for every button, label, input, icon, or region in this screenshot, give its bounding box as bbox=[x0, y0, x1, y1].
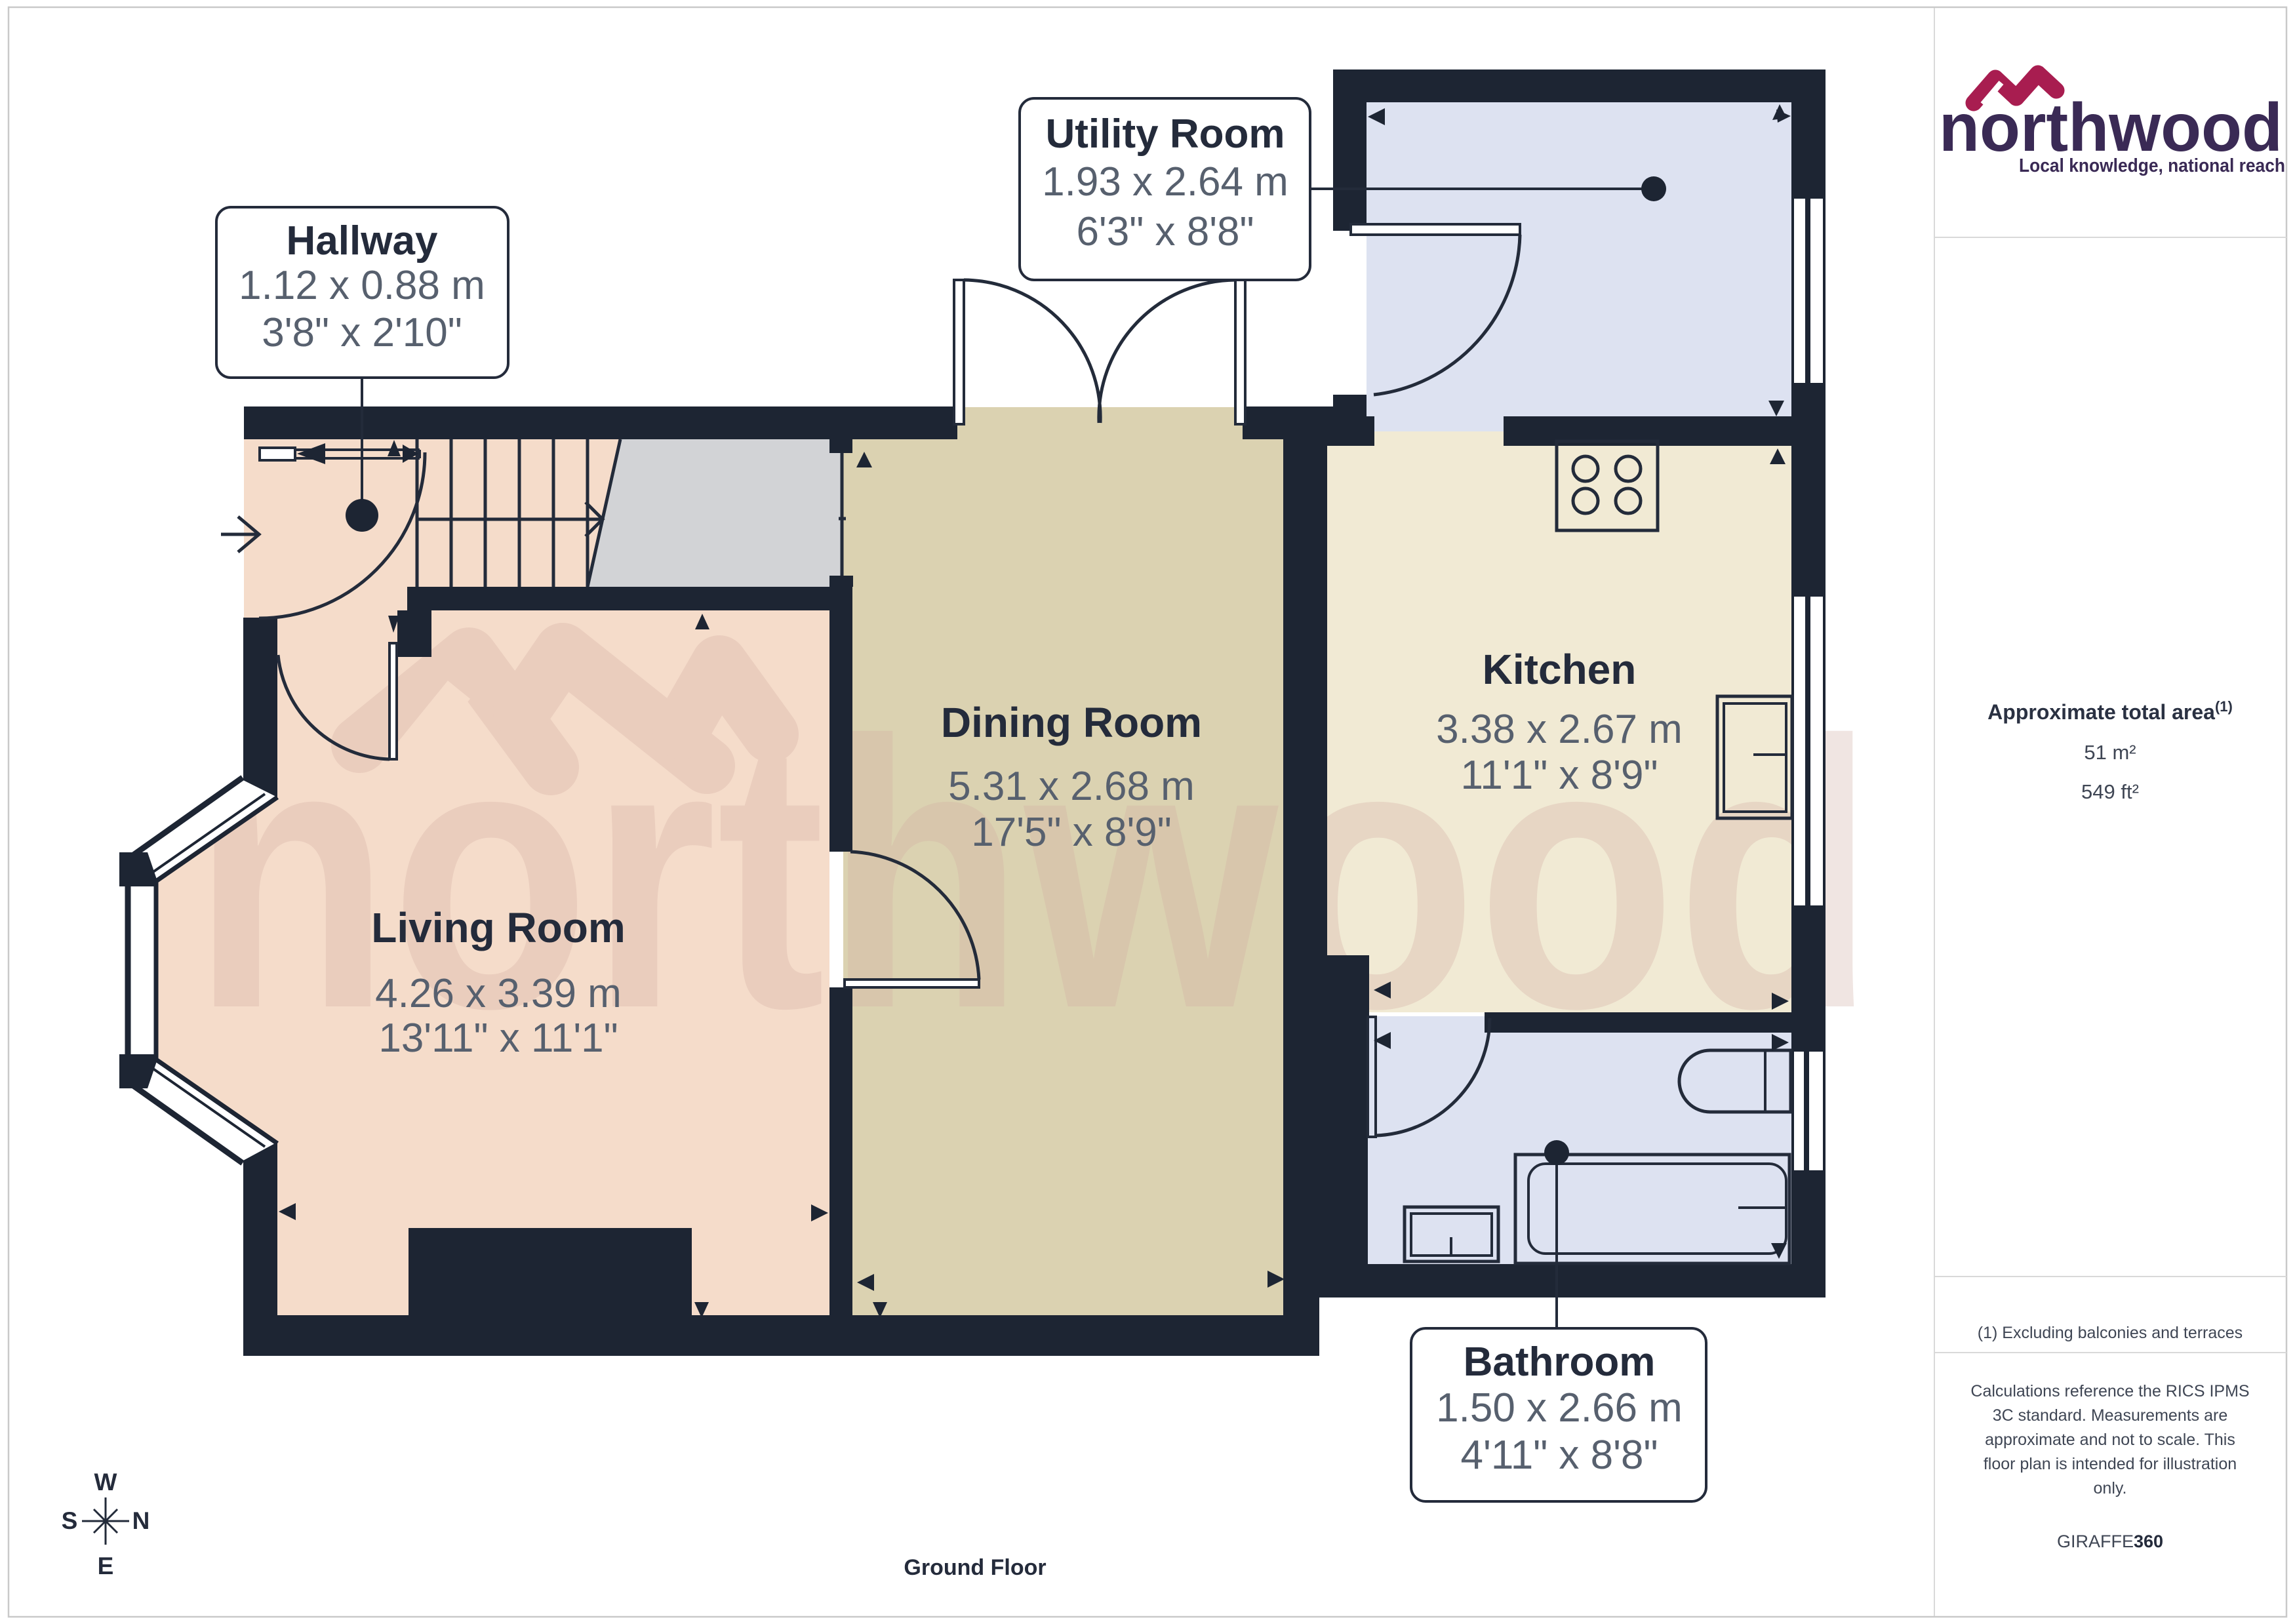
svg-text:549 ft²: 549 ft² bbox=[2081, 780, 2139, 803]
svg-text:N: N bbox=[132, 1507, 150, 1534]
svg-text:Living Room: Living Room bbox=[371, 904, 626, 951]
svg-text:W: W bbox=[94, 1469, 117, 1495]
svg-text:3.38 x 2.67 m: 3.38 x 2.67 m bbox=[1436, 707, 1683, 752]
svg-text:51 m²: 51 m² bbox=[2084, 741, 2136, 764]
svg-text:Dining Room: Dining Room bbox=[941, 699, 1202, 746]
svg-text:Ground Floor: Ground Floor bbox=[904, 1555, 1046, 1580]
svg-text:only.: only. bbox=[2094, 1479, 2127, 1497]
svg-text:1.50 x 2.66 m: 1.50 x 2.66 m bbox=[1436, 1385, 1683, 1431]
svg-text:Local knowledge, national reac: Local knowledge, national reach bbox=[2019, 155, 2285, 176]
svg-text:Utility Room: Utility Room bbox=[1045, 111, 1285, 157]
svg-text:3C standard. Measurements are: 3C standard. Measurements are bbox=[1993, 1406, 2228, 1425]
svg-text:3'8" x 2'10": 3'8" x 2'10" bbox=[262, 310, 462, 355]
svg-text:17'5" x 8'9": 17'5" x 8'9" bbox=[971, 810, 1172, 855]
svg-text:1.12 x 0.88 m: 1.12 x 0.88 m bbox=[239, 263, 485, 308]
svg-text:Approximate total area(1): Approximate total area(1) bbox=[1987, 698, 2233, 724]
svg-text:4'11" x 8'8": 4'11" x 8'8" bbox=[1461, 1433, 1658, 1478]
svg-text:approximate and not to scale.: approximate and not to scale. This bbox=[1985, 1431, 2235, 1449]
svg-text:Bathroom: Bathroom bbox=[1464, 1339, 1656, 1385]
svg-text:11'1" x 8'9": 11'1" x 8'9" bbox=[1461, 753, 1658, 798]
svg-text:6'3" x 8'8": 6'3" x 8'8" bbox=[1076, 209, 1254, 254]
svg-text:13'11" x 11'1": 13'11" x 11'1" bbox=[378, 1016, 618, 1061]
svg-text:S: S bbox=[62, 1507, 78, 1534]
svg-text:GIRAFFE360: GIRAFFE360 bbox=[2057, 1532, 2163, 1551]
svg-text:Hallway: Hallway bbox=[287, 218, 438, 264]
svg-text:1.93 x 2.64 m: 1.93 x 2.64 m bbox=[1042, 159, 1288, 205]
svg-text:Kitchen: Kitchen bbox=[1483, 646, 1637, 693]
svg-text:5.31 x 2.68 m: 5.31 x 2.68 m bbox=[948, 764, 1195, 809]
svg-text:(1) Excluding balconies and te: (1) Excluding balconies and terraces bbox=[1978, 1324, 2243, 1342]
svg-text:4.26 x 3.39 m: 4.26 x 3.39 m bbox=[375, 971, 622, 1016]
svg-text:Calculations reference the RIC: Calculations reference the RICS IPMS bbox=[1970, 1382, 2249, 1400]
svg-text:northwood: northwood bbox=[1939, 90, 2283, 166]
svg-text:floor plan is intended for ill: floor plan is intended for illustration bbox=[1984, 1455, 2237, 1473]
svg-text:E: E bbox=[98, 1553, 114, 1579]
